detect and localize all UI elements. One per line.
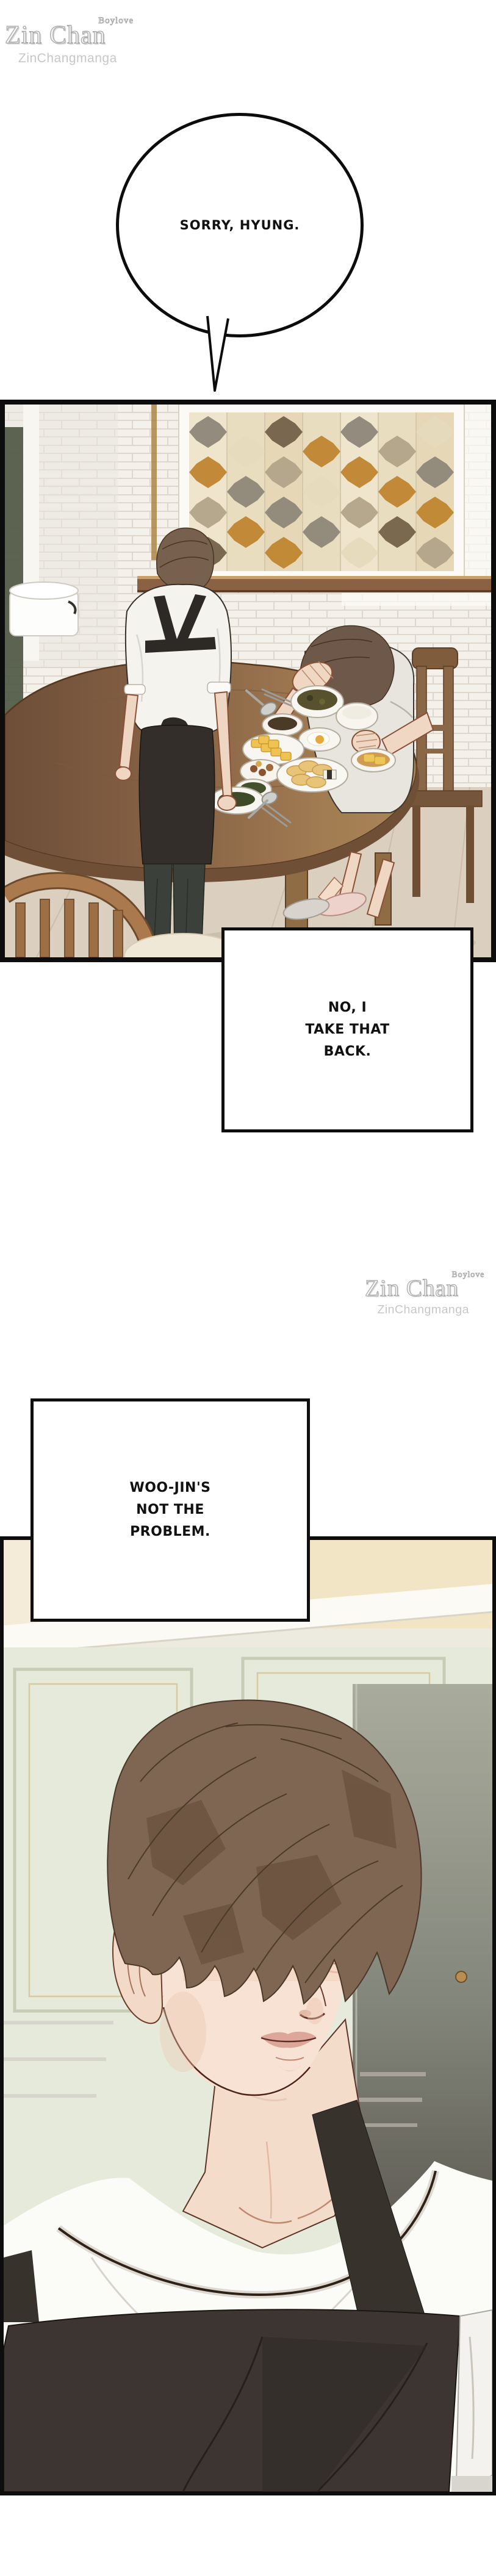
watermark-tagline: Boylove [98,16,134,26]
watermark-subtitle: ZinChangmanga [18,51,117,66]
white-canister [10,582,78,636]
watermark: Boylove Zin Chan ZinChangmanga [5,16,136,74]
comic-page: Boylove Zin Chan ZinChangmanga SORRY, HY… [0,0,496,2576]
standing-man-hair [157,528,214,591]
panel-dining-scene [0,400,496,962]
caption-box: WOO-JIN'S NOT THE PROBLEM. [31,1398,310,1622]
brass-strip [151,405,157,560]
watermark-tagline: Boylove [451,1270,484,1280]
watermark-brand: Zin Chan [5,22,106,49]
portrait-illustration [4,1540,492,2492]
caption-box: NO, I TAKE THAT BACK. [221,927,473,1132]
speech-bubble: SORRY, HYUNG. [116,113,364,337]
watermark: Boylove Zin Chan ZinChangmanga [365,1270,487,1324]
watermark-subtitle: ZinChangmanga [377,1303,469,1317]
dining-scene-illustration [5,405,491,957]
apron-skirt [139,725,214,865]
speech-bubble-text: SORRY, HYUNG. [180,218,300,232]
speech-bubble-tail [201,315,235,392]
mosaic-artwork [179,405,464,581]
sleeve [456,2310,492,2483]
caption-text: NO, I TAKE THAT BACK. [305,997,389,1063]
caption-text: WOO-JIN'S NOT THE PROBLEM. [129,1477,210,1543]
watermark-brand: Zin Chan [365,1276,459,1301]
panel-portrait-scene [0,1536,496,2495]
door-knob [456,1971,467,1982]
standing-man-hand [218,796,236,810]
apron [4,2309,460,2492]
